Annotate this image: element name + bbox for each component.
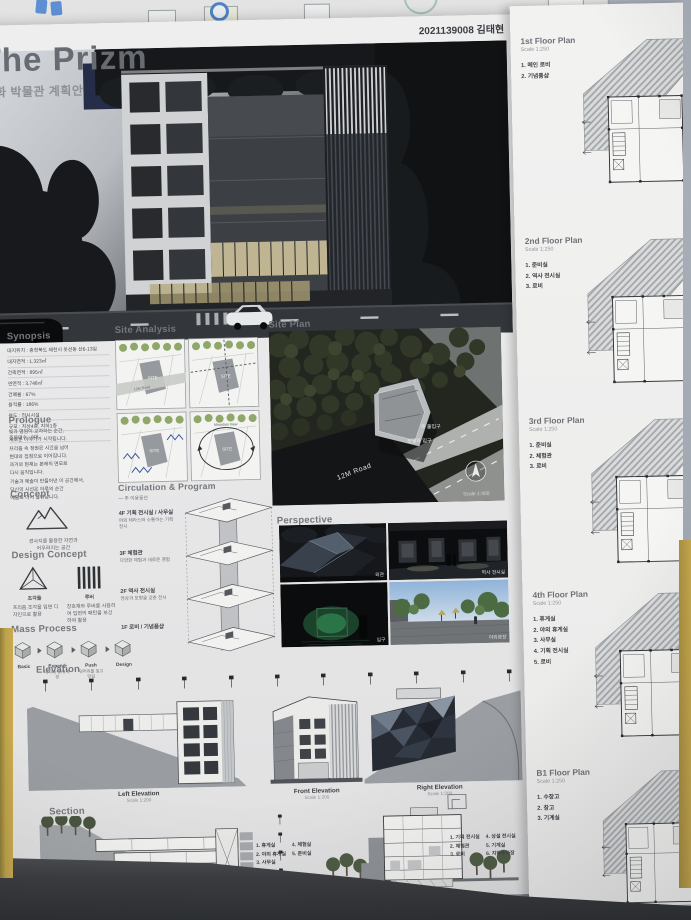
student-id: 2021139008 김태현 (364, 20, 504, 38)
prologue-line: 새로운 이야기가 시작됩니다. (9, 436, 117, 445)
prologue-line: 기술과 예술이 만들어낸 이 공간에서, (10, 478, 118, 487)
room-item: 5. 로비 (534, 657, 590, 669)
louver-caption: 창호재와 루버를 사용하여 입면의 패턴을 보강하여 활용 (67, 603, 117, 624)
floor-plan-drawing (583, 236, 691, 388)
level-marker-icon (413, 670, 419, 684)
legend-item: 1. 기획 전시실 (450, 833, 480, 842)
elevation-section: Elevation (26, 654, 529, 805)
louver-label: 루버 (68, 593, 110, 601)
design-concept-section: Design Concept 조각들 루버 프리즘 조각을 입면 디자인으로 활… (11, 548, 123, 629)
level-marker-icon (460, 669, 466, 683)
prologue-line: 빛과 명암이 교차하는 순간, (9, 428, 117, 437)
legend-item: 4. 체험실 (292, 841, 312, 850)
level-marker-icon (228, 674, 234, 688)
circulation-axon-drawing (178, 494, 278, 668)
level-marker-icon (181, 675, 187, 689)
floor-plan-block-4f: 4th Floor Plan Scale 1:250 1. 휴게실 2. 야외 … (532, 586, 691, 772)
perspective-image-entrance: 입구 (280, 582, 388, 647)
arrow-right-icon (106, 646, 110, 652)
site-analysis-diagram-view: Mountain View SITE (189, 410, 261, 482)
circulation-section: Circulation & Program — 주 이용동선 4F 기획 전시실… (118, 480, 280, 673)
elevation-heading: Elevation (36, 664, 80, 676)
legend-item: 3. 로비 (450, 850, 480, 859)
prism-icon (18, 565, 49, 594)
arrow-right-icon (38, 648, 42, 654)
cube-icon (43, 639, 65, 659)
floor-plan-block-3f: 3rd Floor Plan Scale 1:250 1. 준비실 2. 체험관… (529, 412, 691, 598)
arrow-right-icon (72, 647, 76, 653)
wall-trim-left (0, 628, 13, 878)
floor-plan-block-1f: 1st Floor Plan Scale 1:250 1. 메인 로비 2. 기… (520, 32, 690, 218)
section-detail-sketch (447, 793, 467, 809)
legend-item: 2. 야외 휴게실 (256, 850, 286, 859)
page-subtitle: 문화 박물관 계획안 (0, 82, 84, 101)
north-arrow-icon (466, 461, 486, 481)
circulation-floor-note: 2F 역사 전시실 영상과 모형을 갖춘 전시 (120, 586, 178, 602)
svg-text:SITE: SITE (221, 373, 231, 378)
perspective-image-plaza: 야외광장 (389, 579, 509, 645)
backdrop-stamp-icon (404, 0, 438, 15)
legend-item: 4. 상설 전시실 (486, 832, 516, 841)
prologue-line: 프리즘 속 정원은 시간을 넘어 (9, 445, 117, 454)
cube-icon (77, 638, 99, 658)
mountain-icon (24, 504, 69, 531)
level-marker-icon (277, 813, 282, 825)
svg-text:주 출입구: 주 출입구 (421, 423, 441, 430)
floor-plan-drawing (591, 590, 691, 742)
section-legend-left: 1. 휴게실 2. 야외 휴게실 3. 사무실 4. 체험실 5. 준비실 (256, 841, 312, 868)
floor-plan-block-b1: B1 Floor Plan Scale 1:250 1. 수장고 2. 창고 3… (536, 764, 691, 918)
prologue-heading: Prologue (9, 413, 117, 426)
level-marker-icon (89, 678, 95, 692)
prologue-line: 현대와 접점으로 이어집니다. (9, 453, 117, 462)
floor-plan-drawing (587, 416, 691, 568)
perspective-caption: 야외광장 (489, 634, 507, 641)
level-marker-icon (321, 672, 327, 686)
circulation-floor-note: 1F 로비 / 기념품샵 (121, 622, 179, 632)
site-analysis-diagram-road: 12M Road SITE (115, 338, 187, 410)
site-analysis-heading: Site Analysis (115, 322, 261, 336)
legend-item: 3. 사무실 (256, 858, 286, 867)
site-analysis-diagram-axis: SITE (188, 337, 260, 409)
circulation-floor-note: 4F 기획 전시실 / 사무실 야외 테라스와 소통하는 기획 전시 (119, 508, 177, 530)
left-elevation-drawing (27, 690, 247, 791)
level-marker-icon (42, 679, 48, 693)
louver-icon (76, 564, 103, 591)
page-title: The Prizm (0, 38, 148, 80)
svg-text:SITE: SITE (148, 375, 158, 380)
svg-text:보행자 입구: 보행자 입구 (407, 437, 432, 445)
perspective-image-history-hall: 역사 전시실 (388, 520, 508, 580)
cube-icon (11, 640, 33, 660)
prism-label: 조각들 (12, 594, 56, 602)
site-plan-image: 주 출입구 보행자 입구 12M Road Scale 1:400 (269, 327, 505, 506)
perspective-image-exterior: 외관 (279, 523, 387, 582)
concept-heading: Concept (10, 487, 110, 500)
floor-plan-drawing (594, 768, 691, 908)
floor-plan-block-2f: 2nd Floor Plan Scale 1:250 1. 준비실 2. 역사 … (525, 232, 691, 418)
design-concept-heading: Design Concept (11, 548, 121, 561)
room-item: 3. 로비 (526, 281, 582, 293)
level-marker-icon (274, 673, 280, 687)
synopsis-heading: Synopsis (7, 329, 109, 342)
room-item: 3. 로비 (530, 461, 586, 473)
svg-text:SITE: SITE (222, 446, 232, 451)
right-elevation-drawing (363, 684, 523, 783)
room-item: 3. 기계실 (537, 813, 593, 825)
legend-item: 5. 준비실 (292, 849, 312, 858)
blue-tab-icon (50, 1, 62, 16)
perspective-caption: 역사 전시실 (482, 569, 506, 577)
svg-text:SITE: SITE (149, 448, 159, 453)
room-item: 2. 기념품샵 (521, 71, 577, 83)
level-marker-icon (135, 677, 141, 691)
photo-of-presentation-board: The Prizm 문화 박물관 계획안 2021139008 김태현 Syno… (0, 0, 691, 920)
svg-text:Scale 1:400: Scale 1:400 (463, 491, 490, 498)
circulation-floor-note: 3F 체험관 다양한 체험과 새로운 경험 (119, 548, 177, 564)
svg-text:Mountain View: Mountain View (214, 422, 238, 427)
level-marker-icon (367, 671, 373, 685)
section-legend-right: 1. 기획 전시실 2. 체험관 3. 로비 4. 상설 전시실 5. 기계실 … (450, 832, 516, 859)
prologue-line: 과거와 현재는 본래의 면모로 (10, 461, 118, 470)
level-marker-icon (506, 668, 512, 682)
floor-plan-drawing (578, 37, 687, 189)
blue-tab-icon (35, 0, 47, 14)
concept-section: Concept 경사지를 활용한 자연과 어우러지는 공간 (10, 487, 111, 553)
site-analysis-section: Site Analysis 12M Road SITE SITE (115, 322, 264, 483)
wall-trim-right (679, 540, 691, 888)
prologue-line: 다시 움직입니다. (10, 469, 118, 478)
floor-plans-sheet: 1st Floor Plan Scale 1:250 1. 메인 로비 2. 기… (510, 2, 691, 908)
front-elevation-drawing (269, 690, 363, 788)
perspective-caption: 외관 (375, 571, 384, 578)
presentation-poster: The Prizm 문화 박물관 계획안 2021139008 김태현 Syno… (0, 10, 691, 906)
perspective-caption: 입구 (377, 636, 386, 643)
legend-item: 6. 지하주차장 (486, 849, 516, 858)
circulation-heading: Circulation & Program (118, 480, 276, 493)
site-plan-heading: Site Plan (268, 319, 310, 331)
wall-edge-right (683, 0, 691, 545)
site-analysis-diagram-noise: SITE (116, 411, 188, 483)
prism-caption: 프리즘 조각을 입면 디자인으로 활용 (13, 604, 61, 619)
